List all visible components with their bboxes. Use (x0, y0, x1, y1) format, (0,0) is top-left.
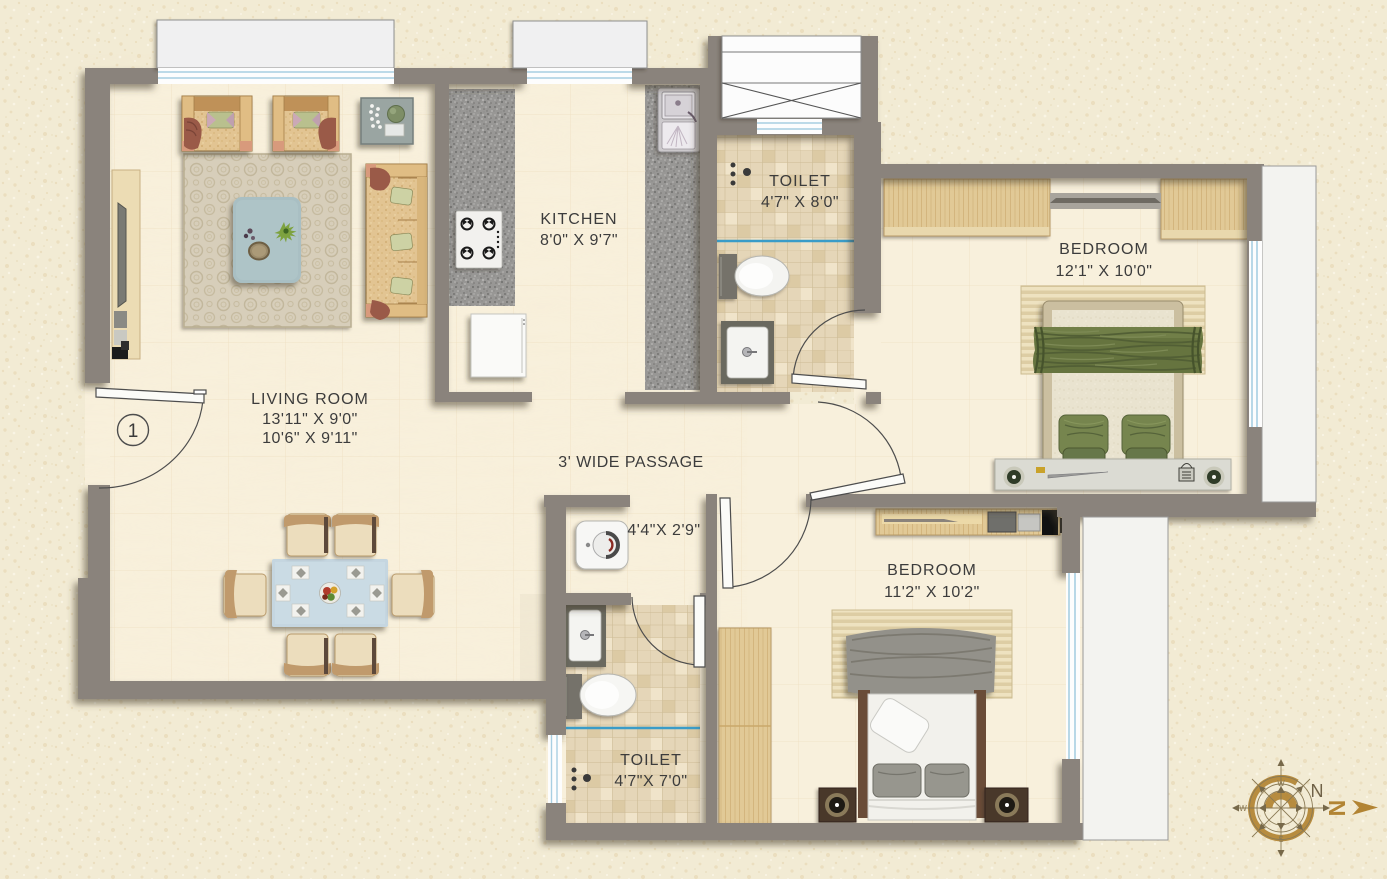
svg-text:BEDROOM: BEDROOM (1059, 241, 1149, 258)
svg-text:4'4"X 2'9": 4'4"X 2'9" (627, 522, 700, 539)
svg-text:LIVING ROOM: LIVING ROOM (251, 391, 369, 408)
svg-text:TOILET: TOILET (620, 752, 682, 769)
svg-text:1: 1 (128, 421, 139, 442)
svg-text:12'1" X 10'0": 12'1" X 10'0" (1056, 263, 1153, 280)
svg-text:11'2" X 10'2": 11'2" X 10'2" (884, 584, 980, 601)
svg-text:BEDROOM: BEDROOM (887, 562, 977, 579)
svg-text:10'6" X 9'11": 10'6" X 9'11" (262, 430, 358, 447)
svg-text:W: W (1277, 779, 1285, 788)
svg-text:N: N (1311, 781, 1324, 801)
svg-text:8'0" X 9'7": 8'0" X 9'7" (540, 232, 618, 249)
svg-text:N: N (1324, 800, 1350, 817)
svg-text:KITCHEN: KITCHEN (540, 211, 617, 228)
svg-text:W: W (1239, 804, 1247, 813)
svg-text:3' WIDE PASSAGE: 3' WIDE PASSAGE (558, 454, 703, 471)
svg-text:S: S (1278, 835, 1283, 844)
svg-text:4'7" X 8'0": 4'7" X 8'0" (761, 194, 839, 211)
svg-text:4'7"X 7'0": 4'7"X 7'0" (614, 773, 687, 790)
svg-text:13'11" X 9'0": 13'11" X 9'0" (262, 411, 358, 428)
svg-text:TOILET: TOILET (769, 173, 831, 190)
